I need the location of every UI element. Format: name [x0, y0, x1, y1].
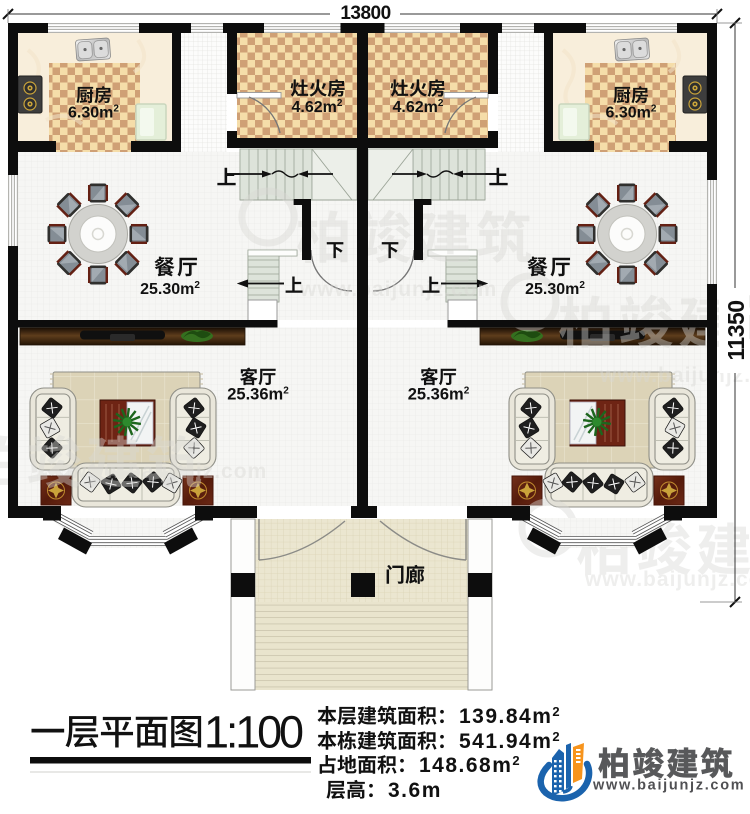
svg-text:11350: 11350 [723, 300, 749, 360]
svg-text:25.30m2: 25.30m2 [525, 280, 585, 298]
svg-text:25.30m2: 25.30m2 [140, 280, 200, 298]
svg-text:4.62m2: 4.62m2 [393, 98, 444, 116]
svg-text:13800: 13800 [340, 3, 390, 24]
svg-text:139.84m2: 139.84m2 [459, 704, 561, 728]
svg-text:25.36m2: 25.36m2 [408, 386, 470, 404]
svg-text:1:100: 1:100 [204, 707, 304, 758]
svg-text:148.68m2: 148.68m2 [419, 753, 521, 777]
svg-text:www.baijunjz.com: www.baijunjz.com [584, 568, 750, 591]
svg-text:www.baijunjz.com: www.baijunjz.com [592, 778, 745, 794]
svg-text:www.baijunjz.com: www.baijunjz.com [299, 278, 497, 301]
svg-text:6.30m2: 6.30m2 [68, 104, 119, 122]
svg-text:6.30m2: 6.30m2 [606, 104, 657, 122]
svg-text:www.baijunjz.com: www.baijunjz.com [69, 460, 267, 483]
svg-text:3.6m: 3.6m [388, 779, 442, 802]
svg-text:541.94m2: 541.94m2 [459, 729, 561, 753]
svg-text:25.36m2: 25.36m2 [227, 386, 289, 404]
svg-text:4.62m2: 4.62m2 [292, 98, 343, 116]
